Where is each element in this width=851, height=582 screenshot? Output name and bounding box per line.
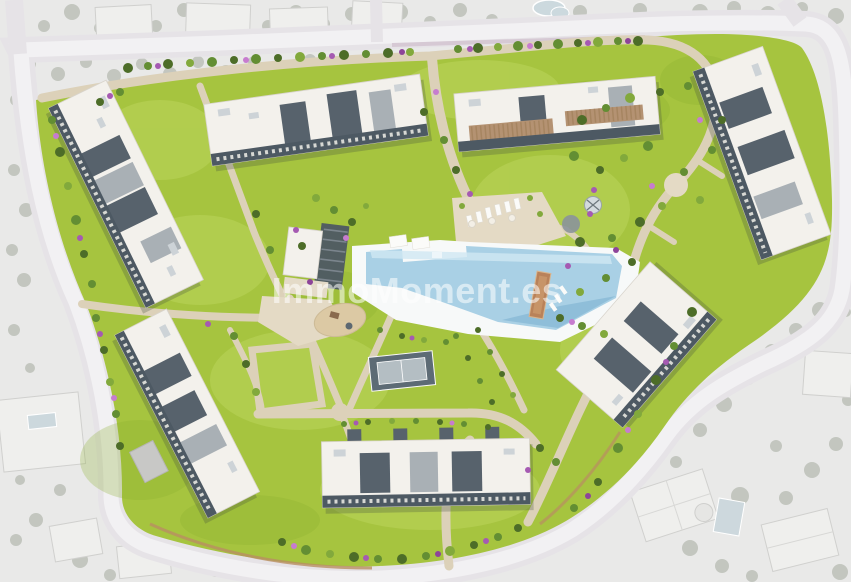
multisport-court [368, 351, 435, 392]
path-junction [331, 403, 349, 421]
neighbor-villa-pool [713, 498, 745, 536]
garden-pergola [562, 215, 580, 233]
watermark-text: ImmoMoment.es [272, 270, 563, 311]
pool-steps [432, 252, 442, 258]
round-plaza [664, 173, 688, 197]
umbrella [509, 215, 516, 222]
aerial-render: ImmoMoment.es [0, 0, 851, 582]
checkered-dome [585, 197, 602, 214]
umbrella [469, 221, 476, 228]
aerial-site-plan-image: ImmoMoment.es [0, 0, 851, 582]
umbrella [489, 218, 496, 225]
